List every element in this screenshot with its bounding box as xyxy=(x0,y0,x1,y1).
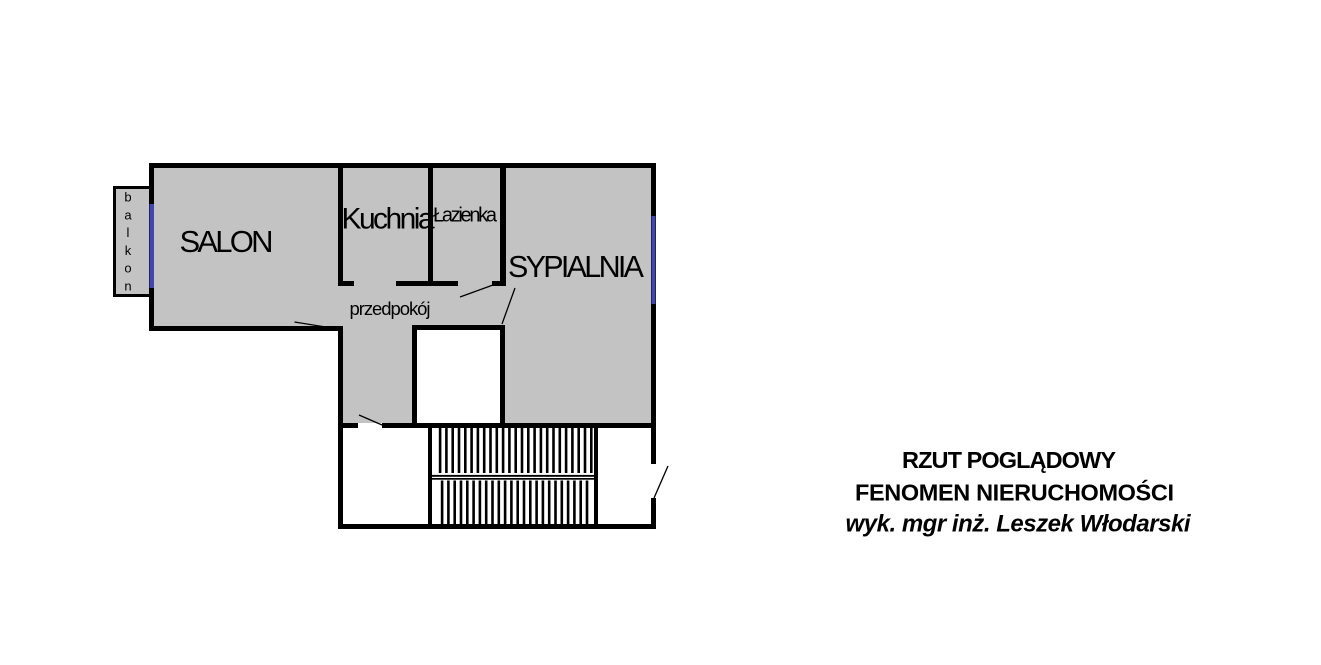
svg-text:SYPIALNIA: SYPIALNIA xyxy=(508,250,645,284)
svg-text:RZUT POGLĄDOWY: RZUT POGLĄDOWY xyxy=(902,447,1116,473)
svg-text:n: n xyxy=(124,279,131,294)
svg-text:b: b xyxy=(124,190,131,205)
svg-text:FENOMEN NIERUCHOMOŚCI: FENOMEN NIERUCHOMOŚCI xyxy=(855,479,1174,506)
svg-text:Kuchnia: Kuchnia xyxy=(342,203,435,236)
svg-text:l: l xyxy=(127,225,130,240)
svg-text:o: o xyxy=(124,261,131,276)
svg-text:przedpokój: przedpokój xyxy=(350,298,431,319)
svg-text:wyk. mgr inż. Leszek Włodarski: wyk. mgr inż. Leszek Włodarski xyxy=(846,511,1192,538)
svg-text:a: a xyxy=(124,207,132,222)
svg-text:k: k xyxy=(125,243,132,258)
svg-text:SALON: SALON xyxy=(180,224,274,259)
svg-text:Łazienka: Łazienka xyxy=(433,205,498,227)
